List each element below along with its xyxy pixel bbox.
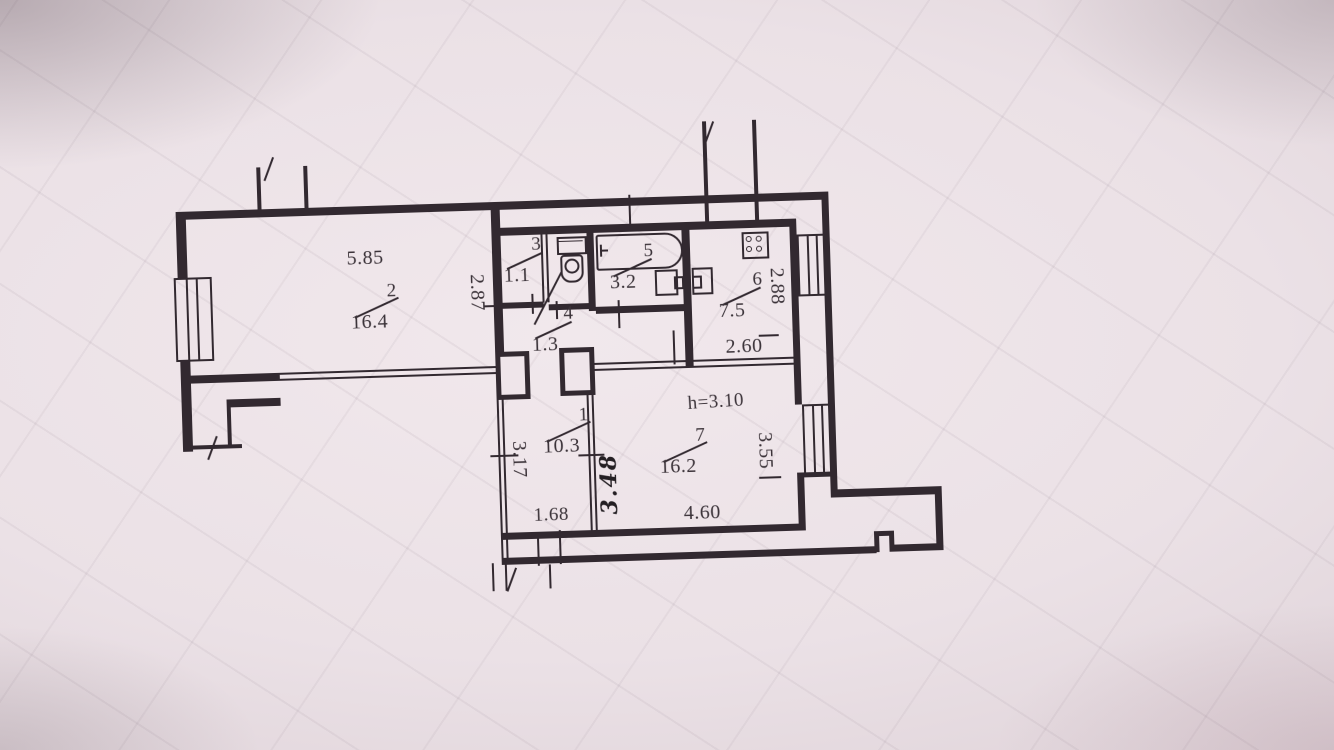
vent-shaft xyxy=(256,166,309,218)
partition-room2 xyxy=(280,366,496,381)
room-number: 5 xyxy=(643,241,653,260)
vent-shaft xyxy=(702,120,759,222)
dimension-label: 3.17 xyxy=(509,429,531,490)
wall-kitchen-left xyxy=(681,222,694,368)
door-opening-tick xyxy=(673,330,676,364)
room-label-3: 3 1.1 xyxy=(502,235,544,286)
room-label-1: 1 10.3 xyxy=(542,405,596,457)
floor-plan-photo: 2 16.4 3 1.1 4 1.3 5 3.2 6 7.5 1 10.3 xyxy=(0,0,1334,750)
wall-niche-bottom xyxy=(226,398,280,408)
door-pier xyxy=(495,351,530,400)
dimension-label: 2.87 xyxy=(466,262,488,323)
room-area: 10.3 xyxy=(543,435,581,456)
room-number: 3 xyxy=(531,235,541,254)
wall-outer-left xyxy=(176,212,188,280)
room-label-5: 5 3.2 xyxy=(609,241,657,292)
room-area: 7.5 xyxy=(719,300,746,321)
window-icon xyxy=(174,277,215,362)
room-label-7: 7 16.2 xyxy=(659,425,713,477)
room-area: 16.4 xyxy=(351,311,389,332)
room-area: 3.2 xyxy=(610,272,637,293)
wall-niche-side xyxy=(227,407,232,448)
wall-building-bottom xyxy=(893,543,943,552)
floor-plan-drawing: 2 16.4 3 1.1 4 1.3 5 3.2 6 7.5 1 10.3 xyxy=(175,105,992,690)
sink-icon xyxy=(674,276,684,289)
stove-icon xyxy=(741,231,769,259)
room-label-6: 6 7.5 xyxy=(718,270,766,321)
door-pier xyxy=(559,347,595,396)
door-opening-tick xyxy=(618,300,621,328)
room-number: 6 xyxy=(752,270,762,289)
wall-building-right xyxy=(935,486,944,550)
wall-building-step xyxy=(831,486,942,497)
dimension-label: 5.85 xyxy=(342,247,389,268)
window-icon xyxy=(797,233,832,296)
toilet-icon xyxy=(557,236,588,255)
wall-building-bottom xyxy=(502,546,877,565)
room-area: 1.3 xyxy=(532,334,559,355)
dimension-label: 1.68 xyxy=(531,505,572,525)
wall-stub xyxy=(492,563,508,591)
sink-icon xyxy=(692,276,702,289)
bathtub-icon xyxy=(600,249,608,251)
room-area: 1.1 xyxy=(503,265,530,286)
room-number: 4 xyxy=(563,304,573,323)
window-icon xyxy=(802,403,837,476)
room-label-4: 4 1.3 xyxy=(531,304,577,355)
dimension-label: 3.55 xyxy=(754,420,776,481)
partition-room7-top xyxy=(595,356,801,370)
room-area: 16.2 xyxy=(660,456,698,477)
wall-notch xyxy=(874,531,894,537)
wall-hall-left xyxy=(497,400,509,560)
wall-room7-right xyxy=(797,474,806,530)
wall-rooms-bottom xyxy=(501,523,806,540)
wall-niche-top xyxy=(191,373,280,384)
wall-outer-left xyxy=(180,360,193,452)
room-label-2: 2 16.4 xyxy=(350,281,404,333)
wall-bath-left xyxy=(586,233,595,311)
dimension-label: 2.88 xyxy=(766,256,788,317)
dimension-label: 2.60 xyxy=(722,336,767,357)
dimension-label: h=3.10 xyxy=(681,390,750,413)
wall-break-icon xyxy=(507,568,518,592)
handwritten-note: 3.48 xyxy=(598,464,622,515)
dimension-label: 4.60 xyxy=(681,502,724,523)
wall-bath-bottom xyxy=(596,304,684,314)
dimension-tick xyxy=(549,564,552,588)
